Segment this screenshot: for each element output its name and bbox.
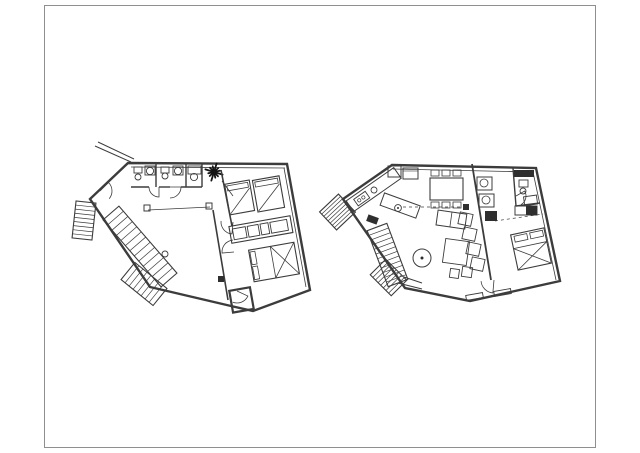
burner	[361, 195, 365, 199]
bed-frame	[249, 242, 300, 282]
toilet-bowl	[162, 173, 168, 179]
dining-table	[430, 178, 463, 200]
rug	[442, 238, 469, 265]
sink	[146, 167, 153, 174]
wardrobe-unit	[270, 219, 289, 233]
column-dark	[463, 204, 469, 210]
stair-interior-tread	[139, 247, 155, 261]
column-dark	[218, 276, 224, 282]
column	[206, 203, 212, 209]
armchair	[462, 227, 477, 241]
stair-interior-tread	[130, 237, 146, 251]
cabinet-dark	[485, 211, 497, 221]
toilet	[161, 167, 169, 173]
stair-exterior-tread	[73, 230, 93, 232]
stair-exterior-tread	[73, 226, 93, 228]
sink	[174, 167, 181, 174]
armchair-frame	[462, 227, 477, 241]
stair-interior-tread	[134, 242, 150, 256]
washer-drum	[480, 179, 488, 187]
bath-cabinet-dark	[514, 170, 534, 177]
table-frame	[461, 266, 472, 277]
bed-cross	[514, 242, 552, 271]
bed-double	[511, 228, 552, 270]
stair-interior-tread	[152, 263, 168, 277]
partition-wall	[472, 164, 491, 280]
burner	[357, 198, 361, 202]
door-swing	[222, 240, 234, 253]
stair-exterior-tread	[74, 221, 94, 223]
door-swing	[149, 187, 159, 197]
stair-exterior-tread	[73, 234, 93, 236]
pillow	[514, 234, 528, 243]
toilet-bowl	[135, 174, 141, 180]
plan-left	[72, 142, 310, 313]
hall-beam	[148, 207, 210, 210]
bed-split	[514, 242, 547, 249]
floor-plan-canvas	[0, 0, 640, 453]
drawing-sheet	[0, 0, 640, 453]
bed-double	[249, 242, 300, 282]
stair-interior-tread	[143, 253, 159, 267]
toilet	[519, 180, 528, 187]
bed-single	[225, 180, 255, 215]
toilet	[134, 167, 142, 173]
wardrobe-unit	[247, 224, 260, 237]
stair-exterior-tread	[125, 266, 139, 283]
bed-frame	[511, 228, 552, 270]
stair-interior-tread	[116, 222, 132, 236]
sofa-split	[450, 212, 452, 227]
chair	[453, 170, 461, 176]
inner-wall-right	[533, 172, 556, 280]
landing-dark	[366, 214, 379, 224]
plant-icon-center	[212, 170, 215, 173]
wardrobe	[229, 216, 293, 244]
door-swing	[100, 183, 112, 199]
stair-exterior-tread	[75, 209, 95, 211]
blanket-fold	[227, 188, 253, 214]
sofa-frame	[436, 210, 467, 229]
stair-interior-tread	[148, 258, 164, 272]
stair-interior-tread	[125, 232, 141, 246]
stair-exterior-tread	[74, 217, 94, 219]
shower-drain	[190, 173, 197, 180]
kitchen-sink	[370, 186, 378, 194]
door-swing	[170, 187, 181, 198]
exterior-wall	[90, 163, 310, 311]
island-sink-dot	[397, 207, 399, 209]
bed-single	[252, 176, 284, 212]
stair-exterior-tread	[75, 213, 95, 215]
inner-wall-top	[131, 167, 285, 168]
round-table-dot	[421, 257, 424, 260]
ramp-edge	[98, 142, 134, 159]
pillow	[530, 230, 544, 239]
rug-frame	[442, 238, 469, 265]
ramp-edge	[95, 146, 131, 162]
stair-interior-tread	[121, 227, 137, 241]
door-swing	[481, 280, 494, 293]
bed-frame	[252, 176, 284, 212]
wardrobe-dark	[526, 206, 537, 215]
stair-interior	[103, 206, 177, 287]
dryer-drum	[482, 196, 490, 204]
stair-exterior-tread	[129, 269, 143, 286]
wardrobe-unit	[232, 227, 247, 240]
plan-right	[320, 164, 560, 301]
side-table	[461, 266, 472, 277]
chair	[431, 170, 439, 176]
table-frame	[449, 268, 459, 278]
hall-wall	[213, 210, 228, 300]
sofa	[436, 210, 467, 229]
chair	[442, 170, 450, 176]
door-swing	[233, 291, 248, 303]
side-table	[449, 268, 459, 278]
stair-interior-tread	[112, 216, 128, 230]
wardrobe-unit	[260, 223, 270, 235]
stair-exterior-tread	[76, 205, 96, 207]
blanket-fold	[255, 184, 284, 211]
